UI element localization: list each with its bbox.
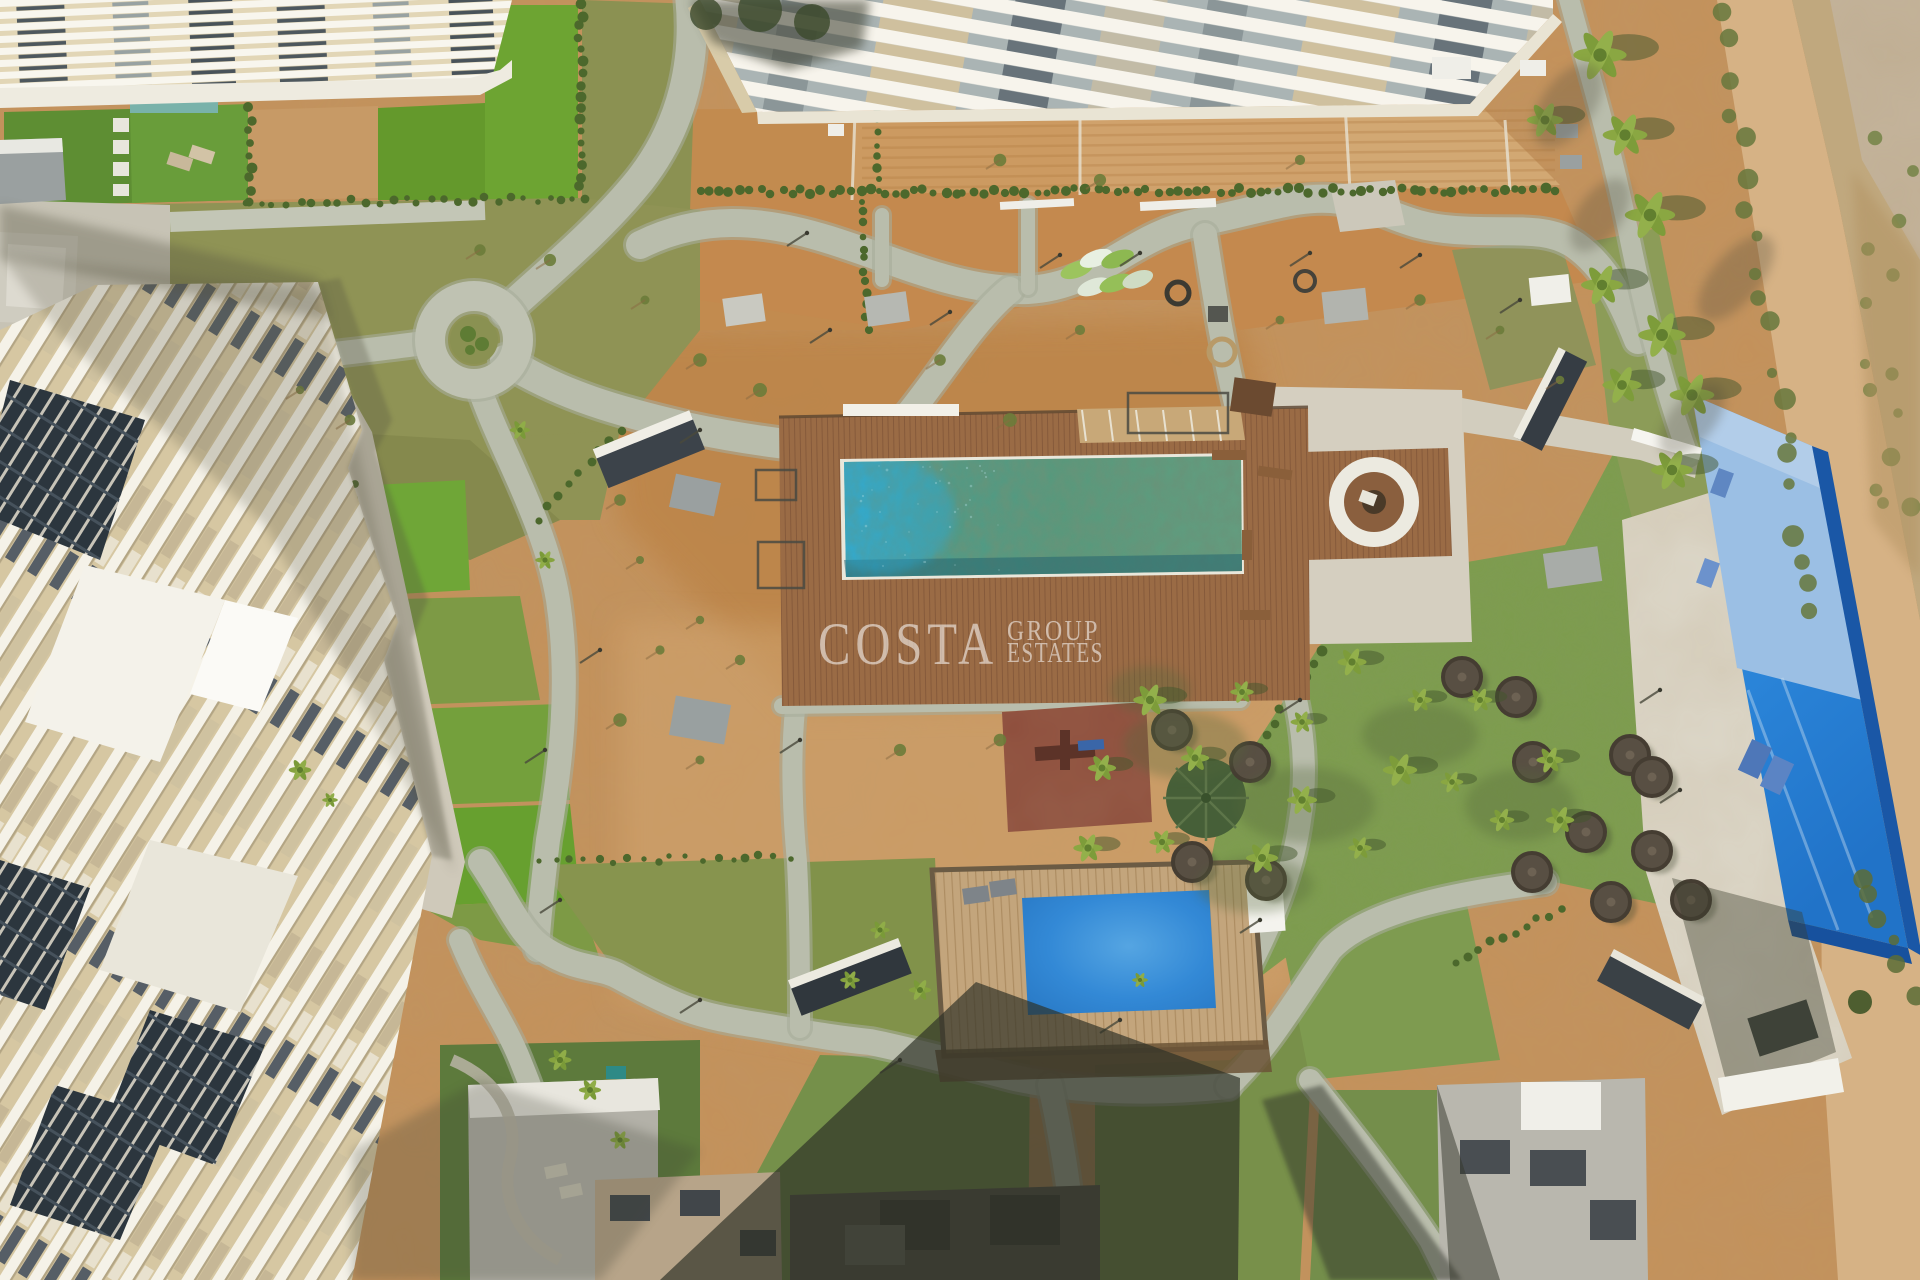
svg-text:COSTA: COSTA (818, 611, 998, 677)
svg-text:ESTATES: ESTATES (1007, 638, 1104, 669)
